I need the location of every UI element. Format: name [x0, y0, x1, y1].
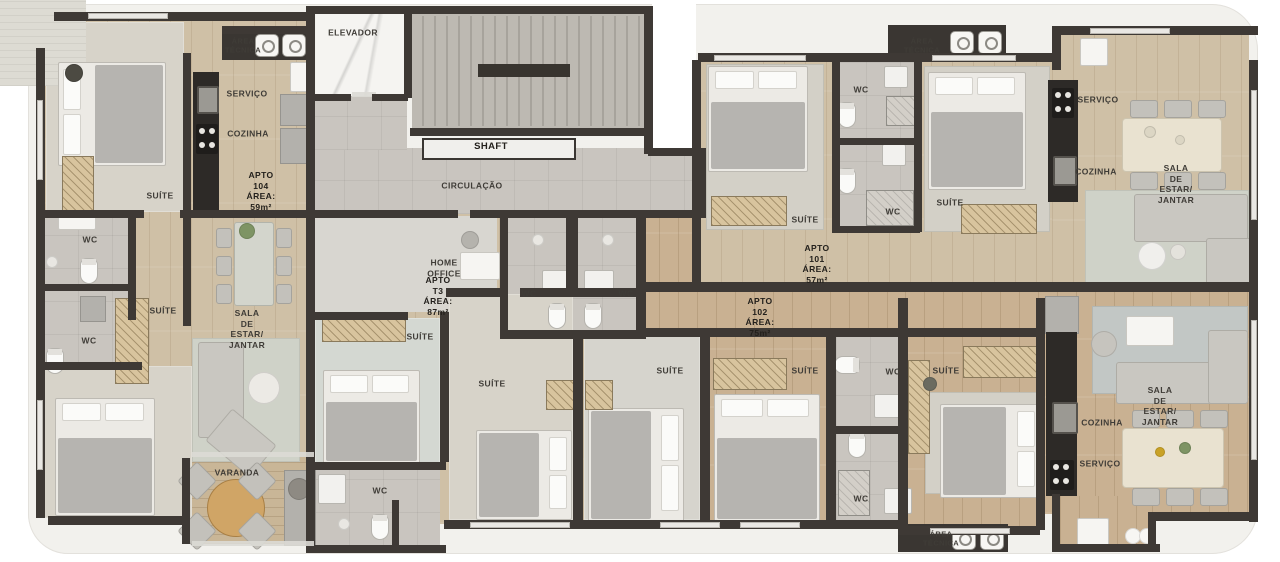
shower-head: [532, 234, 544, 246]
pillow: [1017, 451, 1035, 487]
room-label: SERVIÇO: [227, 89, 268, 100]
bed: [714, 394, 820, 522]
building-notch: [652, 0, 696, 150]
burner: [1065, 106, 1071, 112]
burner: [1063, 464, 1069, 470]
room-label: WC: [83, 235, 98, 246]
wall: [640, 282, 1258, 292]
shower-head: [46, 256, 58, 268]
bed: [476, 430, 572, 520]
stove: [1052, 88, 1074, 118]
stove: [196, 124, 218, 154]
wall: [44, 284, 132, 291]
wall: [404, 12, 412, 98]
stair-tread: [578, 16, 580, 126]
wall: [573, 330, 583, 522]
window: [714, 55, 806, 61]
room-label: CIRCULAÇÃO: [441, 181, 502, 192]
cabinet: [1045, 296, 1079, 334]
wall: [310, 6, 648, 14]
cabinet: [80, 296, 106, 322]
toilet: [834, 356, 860, 374]
wall: [180, 210, 308, 218]
wall: [566, 216, 578, 296]
room-label: WC: [619, 289, 634, 300]
pillow: [715, 71, 754, 89]
bathroom-vanity: [584, 270, 614, 290]
burner: [1063, 478, 1069, 484]
room-label: VARANDA: [215, 468, 260, 479]
bathroom-vanity: [882, 144, 906, 166]
bed-blanket: [58, 438, 152, 513]
wall: [826, 334, 836, 524]
wall: [44, 362, 142, 370]
toilet: [838, 168, 856, 194]
laundry-unit: [1077, 518, 1109, 546]
wall: [306, 6, 315, 216]
stair-tread: [626, 16, 628, 126]
wall: [500, 216, 508, 336]
bathroom-vanity: [874, 394, 900, 418]
wall: [183, 53, 191, 213]
wall: [306, 312, 408, 320]
wall: [306, 545, 446, 553]
wall: [313, 94, 351, 101]
room-label: SUÍTE: [656, 366, 683, 377]
room-label: APTO 104 ÁREA: 59m²: [247, 170, 276, 213]
pillow: [549, 475, 567, 509]
room-label: SERVIÇO: [1080, 459, 1121, 470]
burner: [1055, 92, 1061, 98]
armchair: [65, 64, 83, 82]
chair: [1164, 100, 1192, 118]
wall: [1052, 544, 1160, 552]
room-label: SUÍTE: [149, 306, 176, 317]
burner: [1065, 92, 1071, 98]
washing-machine: [950, 31, 974, 54]
washing-machine: [282, 34, 306, 57]
room-label: SUÍTE: [791, 215, 818, 226]
room-label: COZINHA: [1075, 167, 1117, 178]
bed: [588, 408, 684, 522]
stair-tread: [602, 16, 604, 126]
stair-tread: [614, 16, 616, 126]
wardrobe: [961, 204, 1037, 234]
office-desk: [460, 252, 500, 280]
bed-blanket: [943, 407, 1006, 495]
wardrobe: [963, 346, 1037, 378]
room-label: WC: [886, 207, 901, 218]
stair-tread: [470, 16, 472, 126]
window: [932, 55, 1016, 61]
room-label: SHAFT: [474, 141, 508, 153]
vanity-top: [58, 216, 96, 230]
room-label: SUÍTE: [936, 198, 963, 209]
room-label: WC: [82, 336, 97, 347]
window: [740, 522, 800, 528]
pillow: [758, 71, 797, 89]
wall: [410, 128, 650, 136]
room-label: COZINHA: [227, 129, 269, 140]
stair-tread: [434, 16, 436, 126]
room-label: SUÍTE: [791, 366, 818, 377]
dining-table: [1122, 428, 1224, 488]
pillow: [63, 114, 81, 155]
room-label: SUÍTE: [146, 191, 173, 202]
kitchen-sink: [1053, 156, 1077, 186]
bed-blanket: [95, 65, 163, 163]
bathroom-vanity: [318, 474, 346, 504]
room-label: SUÍTE: [932, 366, 959, 377]
toilet: [848, 432, 866, 458]
room-label: WC: [373, 486, 388, 497]
chair: [1130, 172, 1158, 190]
wall: [446, 288, 508, 297]
plant: [239, 223, 255, 239]
wall: [905, 328, 1040, 337]
room-label: WC: [886, 367, 901, 378]
window: [660, 522, 720, 528]
wall: [832, 62, 840, 232]
wardrobe: [908, 360, 930, 454]
chair: [1130, 100, 1158, 118]
chair: [1200, 410, 1228, 428]
wall: [1152, 512, 1257, 521]
room-label: APTO 102 ÁREA: 75m²: [746, 296, 775, 339]
wall: [1036, 298, 1045, 530]
office-chair: [461, 231, 479, 249]
burner: [1055, 106, 1061, 112]
room-label: SERVIÇO: [1078, 95, 1119, 106]
bed: [323, 370, 420, 464]
chair: [1198, 172, 1226, 190]
toilet: [46, 348, 64, 374]
fridge: [1080, 38, 1108, 66]
pillow: [549, 437, 567, 471]
bed-blanket: [931, 112, 1023, 187]
burner: [1053, 478, 1059, 484]
pillow: [62, 403, 101, 421]
window: [37, 100, 43, 180]
chair: [1166, 488, 1194, 506]
coffee-table: [1138, 242, 1166, 270]
chair: [1198, 100, 1226, 118]
toilet: [838, 102, 856, 128]
pillow: [977, 77, 1015, 95]
pillow: [767, 399, 809, 417]
wardrobe: [713, 358, 787, 390]
side-table: [1170, 244, 1186, 260]
decor: [1155, 447, 1165, 457]
room-label: SALA DE ESTAR/ JANTAR: [1142, 385, 1178, 428]
wall: [372, 94, 408, 101]
wall: [1148, 512, 1156, 548]
room-label: APTO T3 ÁREA: 87m²: [424, 275, 453, 318]
wall: [183, 214, 191, 326]
wall: [440, 312, 449, 462]
wall: [832, 138, 920, 145]
chair: [216, 284, 232, 304]
stair-tread: [446, 16, 448, 126]
stair-tread: [422, 16, 424, 126]
wall: [306, 210, 458, 218]
wardrobe: [546, 380, 574, 410]
bed-blanket: [717, 438, 817, 519]
bathroom-vanity: [884, 66, 908, 88]
wardrobe: [62, 156, 94, 216]
wardrobe: [322, 318, 406, 342]
window: [1251, 90, 1257, 220]
kitchen-sink: [197, 86, 219, 114]
room-label: APTO 101 ÁREA: 57m²: [803, 243, 832, 286]
burner: [1053, 464, 1059, 470]
wardrobe: [585, 380, 613, 410]
bed: [708, 66, 808, 172]
pillow: [661, 415, 679, 461]
tv-console: [1126, 316, 1174, 346]
washing-machine: [978, 31, 1002, 54]
bed: [55, 398, 155, 516]
room-label: ELEVADOR: [328, 28, 378, 39]
bed-blanket: [326, 402, 417, 461]
pillow: [330, 375, 368, 393]
shower-head: [338, 518, 350, 530]
wall: [392, 500, 399, 546]
pillow: [661, 465, 679, 511]
bed: [940, 404, 1040, 498]
balcony-glass: [192, 541, 314, 546]
wall: [836, 426, 902, 434]
stair-tread: [590, 16, 592, 126]
chair: [276, 228, 292, 248]
window: [1090, 28, 1170, 34]
chair: [216, 256, 232, 276]
pillow: [1017, 411, 1035, 447]
window: [37, 400, 43, 470]
plant: [923, 377, 937, 391]
room-label: SALA DE ESTAR/ JANTAR: [1158, 163, 1194, 206]
room-label: WC: [854, 494, 869, 505]
toilet: [584, 303, 602, 329]
wall: [914, 62, 922, 232]
bed-blanket: [479, 433, 539, 517]
wall: [306, 462, 446, 470]
stove: [1050, 460, 1074, 490]
toilet: [80, 258, 98, 284]
room-label: ÁREA TÉCNICA: [923, 530, 959, 549]
chair: [1132, 488, 1160, 506]
sofa: [1208, 330, 1248, 404]
burner: [209, 142, 215, 148]
shower-head: [602, 234, 614, 246]
burner: [209, 128, 215, 134]
toilet: [548, 303, 566, 329]
window: [88, 13, 168, 19]
window: [1251, 320, 1257, 460]
pillow: [372, 375, 410, 393]
plant: [1179, 442, 1191, 454]
room-label: ÁREA TÉCNICA: [904, 37, 940, 56]
wall: [832, 226, 920, 233]
bed: [928, 72, 1026, 190]
wall: [636, 214, 646, 332]
floor-lobby: [313, 94, 407, 150]
wall: [128, 214, 136, 320]
room-label: SUÍTE: [478, 379, 505, 390]
pillow: [935, 77, 973, 95]
stair-tread: [458, 16, 460, 126]
wall: [48, 516, 190, 525]
floor-elevator: [316, 14, 404, 96]
stair-rail: [478, 64, 570, 77]
shower: [886, 96, 916, 126]
wall: [692, 60, 701, 288]
wall: [306, 214, 315, 548]
wall: [1052, 494, 1060, 550]
wall: [182, 458, 190, 544]
chair: [276, 256, 292, 276]
stair-tread: [638, 16, 640, 126]
toilet: [371, 514, 389, 540]
plate: [1175, 135, 1185, 145]
wall: [898, 298, 908, 530]
room-label: WC: [854, 85, 869, 96]
wall: [222, 26, 310, 34]
burner: [199, 128, 205, 134]
pillow: [105, 403, 144, 421]
bed-blanket: [711, 102, 805, 169]
wall: [700, 334, 710, 524]
bed-blanket: [591, 411, 651, 519]
room-label: WC: [522, 289, 537, 300]
chair: [1200, 488, 1228, 506]
plate: [1144, 126, 1156, 138]
wardrobe: [711, 196, 787, 226]
pillow: [721, 399, 763, 417]
balcony-glass: [192, 452, 314, 457]
room-label: COZINHA: [1081, 418, 1123, 429]
window: [470, 522, 570, 528]
room-label: ÁREA TÉCNICA: [225, 37, 261, 56]
coffee-table: [248, 372, 280, 404]
burner: [199, 142, 205, 148]
room-label: SALA DE ESTAR/ JANTAR: [229, 308, 265, 351]
kitchen-sink: [1052, 402, 1078, 434]
floor-plan-canvas: ÁREA TÉCNICAELEVADORSERVIÇOCOZINHAAPTO 1…: [0, 0, 1280, 562]
room-label: SUÍTE: [406, 332, 433, 343]
chair: [216, 228, 232, 248]
armchair: [1091, 331, 1117, 357]
chair: [276, 284, 292, 304]
